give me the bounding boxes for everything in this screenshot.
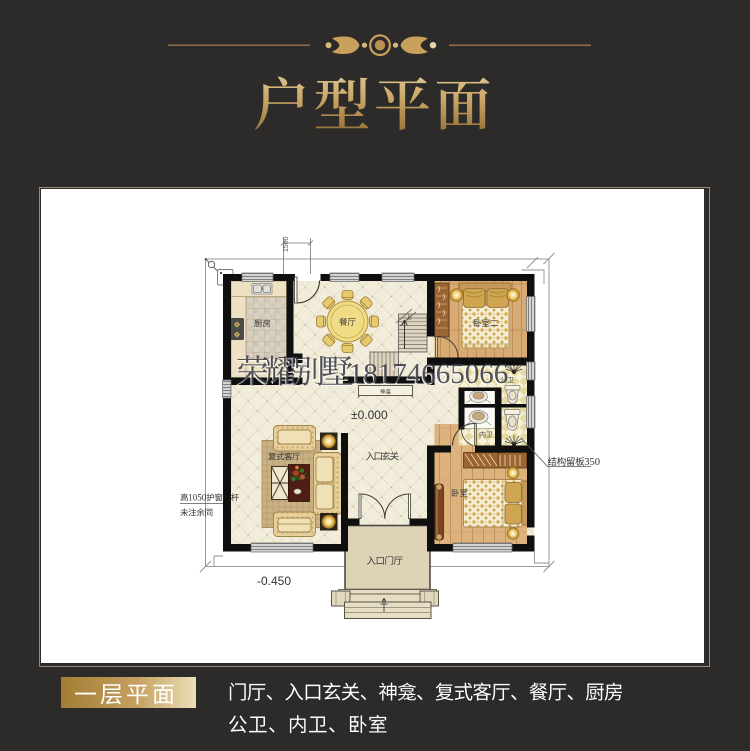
svg-text:±0.000: ±0.000	[351, 408, 388, 422]
svg-text:1050: 1050	[188, 493, 207, 503]
svg-text:1500: 1500	[283, 236, 290, 252]
svg-text:18174665066: 18174665066	[349, 358, 509, 390]
svg-text:-0.450: -0.450	[257, 574, 291, 588]
svg-text:350: 350	[584, 457, 600, 468]
